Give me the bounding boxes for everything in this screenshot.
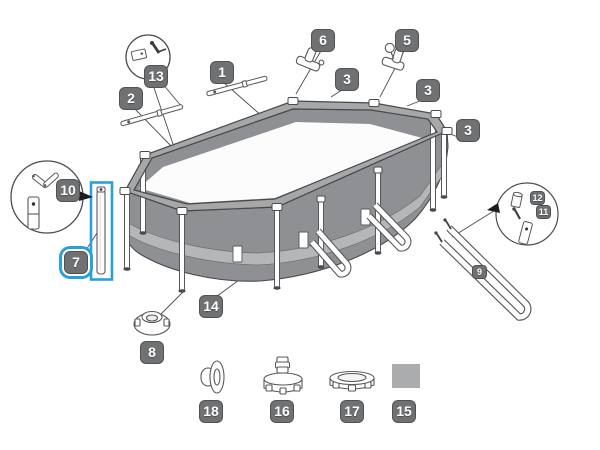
leg-top-icon [28,197,39,229]
detail-circle-10 [11,161,93,233]
valve-18-art [201,361,224,393]
cap-17-art [330,372,374,392]
leg-7-art [97,187,105,274]
part-callout-9[interactable]: 9 [472,265,487,279]
patch-15-art [392,364,420,388]
part-callout-3a[interactable]: 3 [335,68,359,91]
part-callout-14[interactable]: 14 [199,295,223,318]
part-callout-2[interactable]: 2 [119,87,143,110]
part-callout-18[interactable]: 18 [199,400,223,423]
part-callout-6[interactable]: 6 [311,29,335,52]
strainer-16-art [264,357,302,394]
part-callout-8[interactable]: 8 [140,341,164,364]
part-callout-1[interactable]: 1 [210,61,234,84]
part-callout-15[interactable]: 15 [392,400,416,423]
part-callout-11[interactable]: 11 [536,205,551,219]
part-callout-12[interactable]: 12 [530,191,545,205]
part-callout-13[interactable]: 13 [144,65,168,88]
pointer-wedge-11-12 [487,203,500,213]
part-callout-5[interactable]: 5 [395,29,419,52]
pool-art [120,98,452,293]
part-callout-7-selected[interactable]: 7 [64,251,88,274]
part-callout-3c[interactable]: 3 [456,119,480,142]
part-callout-3b[interactable]: 3 [416,79,440,102]
exploded-diagram-art [0,0,600,450]
diagram-canvas: 1 2 3 3 3 5 6 7 8 9 10 11 12 13 14 15 16… [0,0,600,450]
part-callout-17[interactable]: 17 [340,400,364,423]
part-callout-10[interactable]: 10 [56,179,80,202]
foot-8-art [134,312,170,336]
part-callout-16[interactable]: 16 [270,400,294,423]
